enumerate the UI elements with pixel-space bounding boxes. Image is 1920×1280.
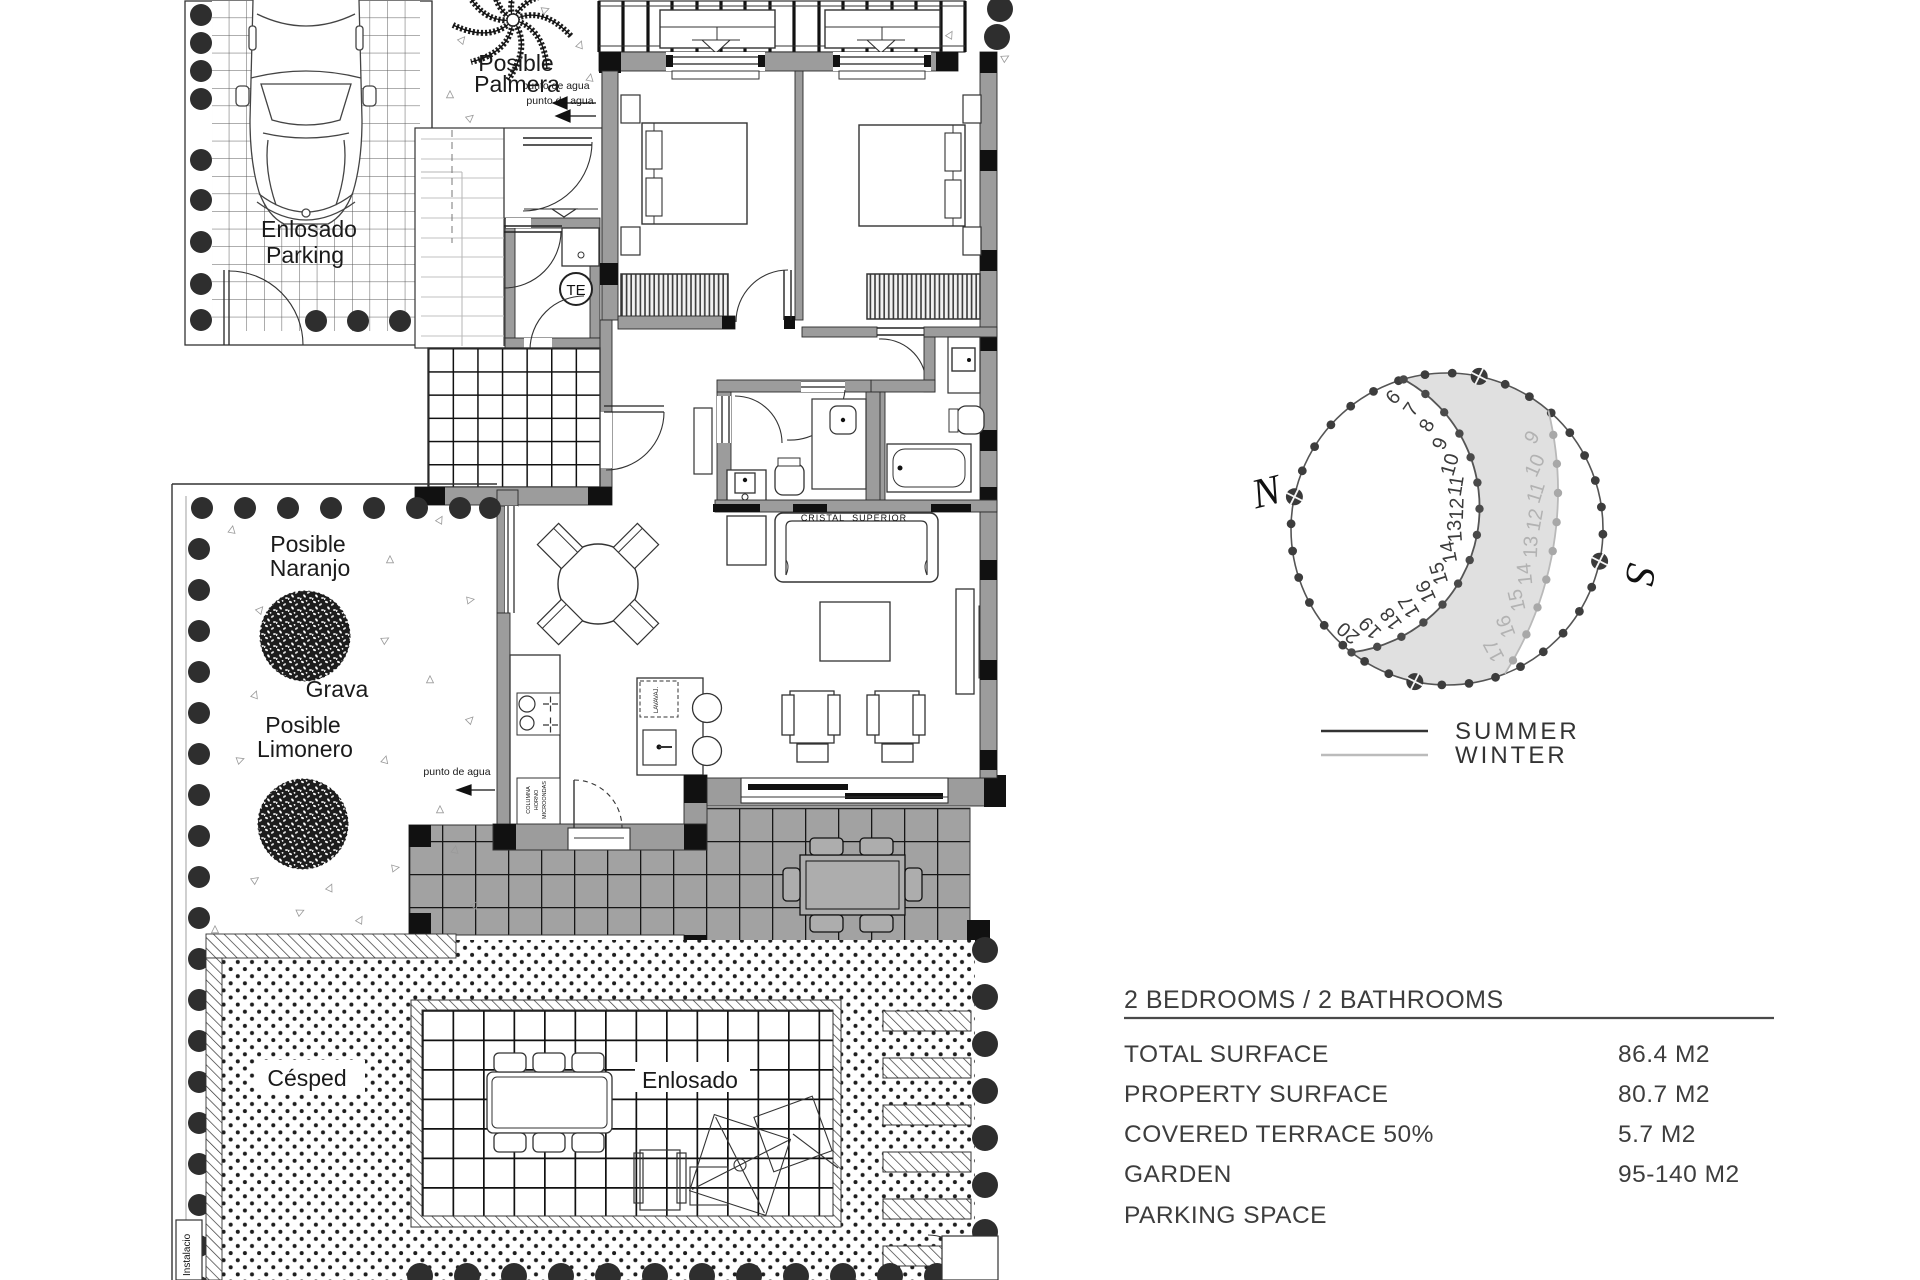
svg-text:HORNO: HORNO — [534, 789, 540, 810]
svg-text:PROPERTY SURFACE: PROPERTY SURFACE — [1124, 1081, 1388, 1108]
svg-text:Posible: Posible — [270, 531, 345, 557]
svg-text:86.4 M2: 86.4 M2 — [1618, 1041, 1710, 1068]
svg-text:95-140 M2: 95-140 M2 — [1618, 1161, 1740, 1188]
svg-text:Naranjo: Naranjo — [270, 555, 351, 581]
svg-text:COVERED TERRACE 50%: COVERED TERRACE 50% — [1124, 1121, 1434, 1148]
svg-text:12: 12 — [1523, 507, 1549, 533]
svg-text:14: 14 — [1436, 539, 1462, 565]
svg-text:Posible: Posible — [265, 712, 340, 738]
svg-text:Enlosado: Enlosado — [642, 1067, 738, 1093]
svg-text:LAVAVAJ.: LAVAVAJ. — [654, 687, 660, 714]
svg-text:TOTAL SURFACE: TOTAL SURFACE — [1124, 1041, 1329, 1068]
svg-text:13: 13 — [1444, 519, 1467, 543]
svg-text:COLUMNA: COLUMNA — [526, 786, 532, 814]
svg-text:13: 13 — [1520, 535, 1543, 558]
svg-text:Césped: Césped — [267, 1065, 346, 1091]
svg-text:MICROONDAS: MICROONDAS — [542, 781, 548, 819]
svg-text:SUMMER: SUMMER — [1455, 718, 1580, 745]
svg-text:GARDEN: GARDEN — [1124, 1161, 1232, 1188]
svg-text:12: 12 — [1446, 497, 1469, 520]
svg-text:2 BEDROOMS / 2 BATHROOMS: 2 BEDROOMS / 2 BATHROOMS — [1124, 986, 1504, 1014]
svg-text:Grava: Grava — [306, 676, 369, 702]
svg-text:14: 14 — [1513, 562, 1537, 586]
svg-text:5.7 M2: 5.7 M2 — [1618, 1121, 1696, 1148]
svg-text:CRISTAL SUPERIOR: CRISTAL SUPERIOR — [801, 513, 907, 523]
svg-text:80.7 M2: 80.7 M2 — [1618, 1081, 1710, 1108]
svg-text:Enlosado: Enlosado — [261, 216, 357, 242]
svg-text:11: 11 — [1444, 474, 1469, 498]
svg-text:Parking: Parking — [266, 242, 344, 268]
svg-text:WINTER: WINTER — [1455, 742, 1568, 769]
svg-text:punto de agua: punto de agua — [423, 766, 490, 778]
svg-text:punto de agua: punto de agua — [522, 80, 589, 92]
svg-text:PARKING SPACE: PARKING SPACE — [1124, 1202, 1327, 1229]
svg-text:Instalacio: Instalacio — [182, 1233, 193, 1276]
svg-text:Limonero: Limonero — [257, 736, 353, 762]
